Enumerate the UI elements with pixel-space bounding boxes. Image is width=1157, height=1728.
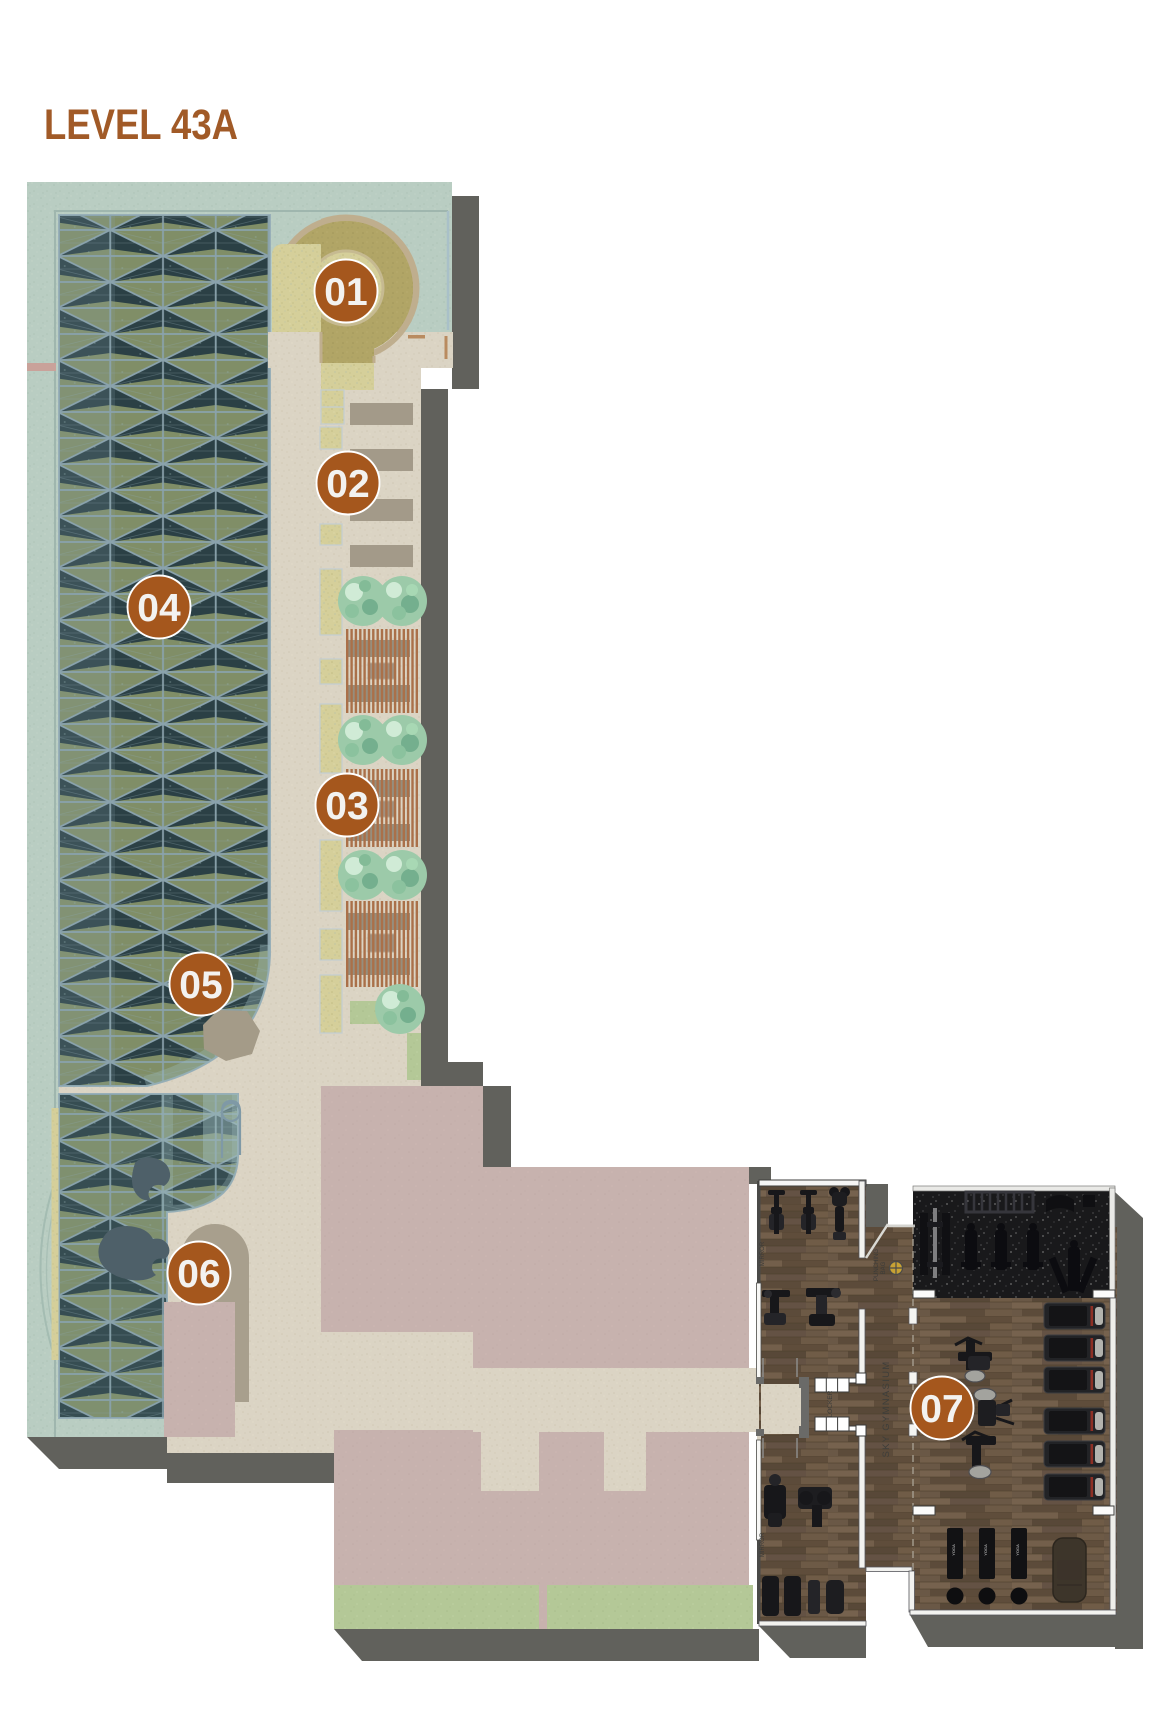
svg-text:YOGA: YOGA: [1015, 1544, 1020, 1556]
svg-text:YOGA: YOGA: [951, 1544, 956, 1556]
svg-text:01: 01: [324, 271, 367, 314]
svg-text:YOGA: YOGA: [983, 1544, 988, 1556]
svg-text:LEVEL 43A: LEVEL 43A: [44, 101, 238, 149]
svg-text:04: 04: [137, 587, 181, 630]
svg-text:MIRROR: MIRROR: [760, 1241, 766, 1266]
svg-text:BAG: BAG: [881, 1261, 887, 1274]
svg-text:02: 02: [326, 463, 369, 506]
svg-text:MIRROR: MIRROR: [760, 1532, 766, 1557]
svg-text:PUNCHING: PUNCHING: [874, 1249, 880, 1281]
svg-text:06: 06: [177, 1253, 220, 1296]
svg-text:03: 03: [325, 785, 368, 828]
svg-text:05: 05: [179, 964, 222, 1007]
svg-text:SKY GYMNASIUM: SKY GYMNASIUM: [881, 1361, 892, 1458]
svg-text:07: 07: [920, 1388, 963, 1431]
svg-text:LOCKER: LOCKER: [827, 1390, 834, 1417]
